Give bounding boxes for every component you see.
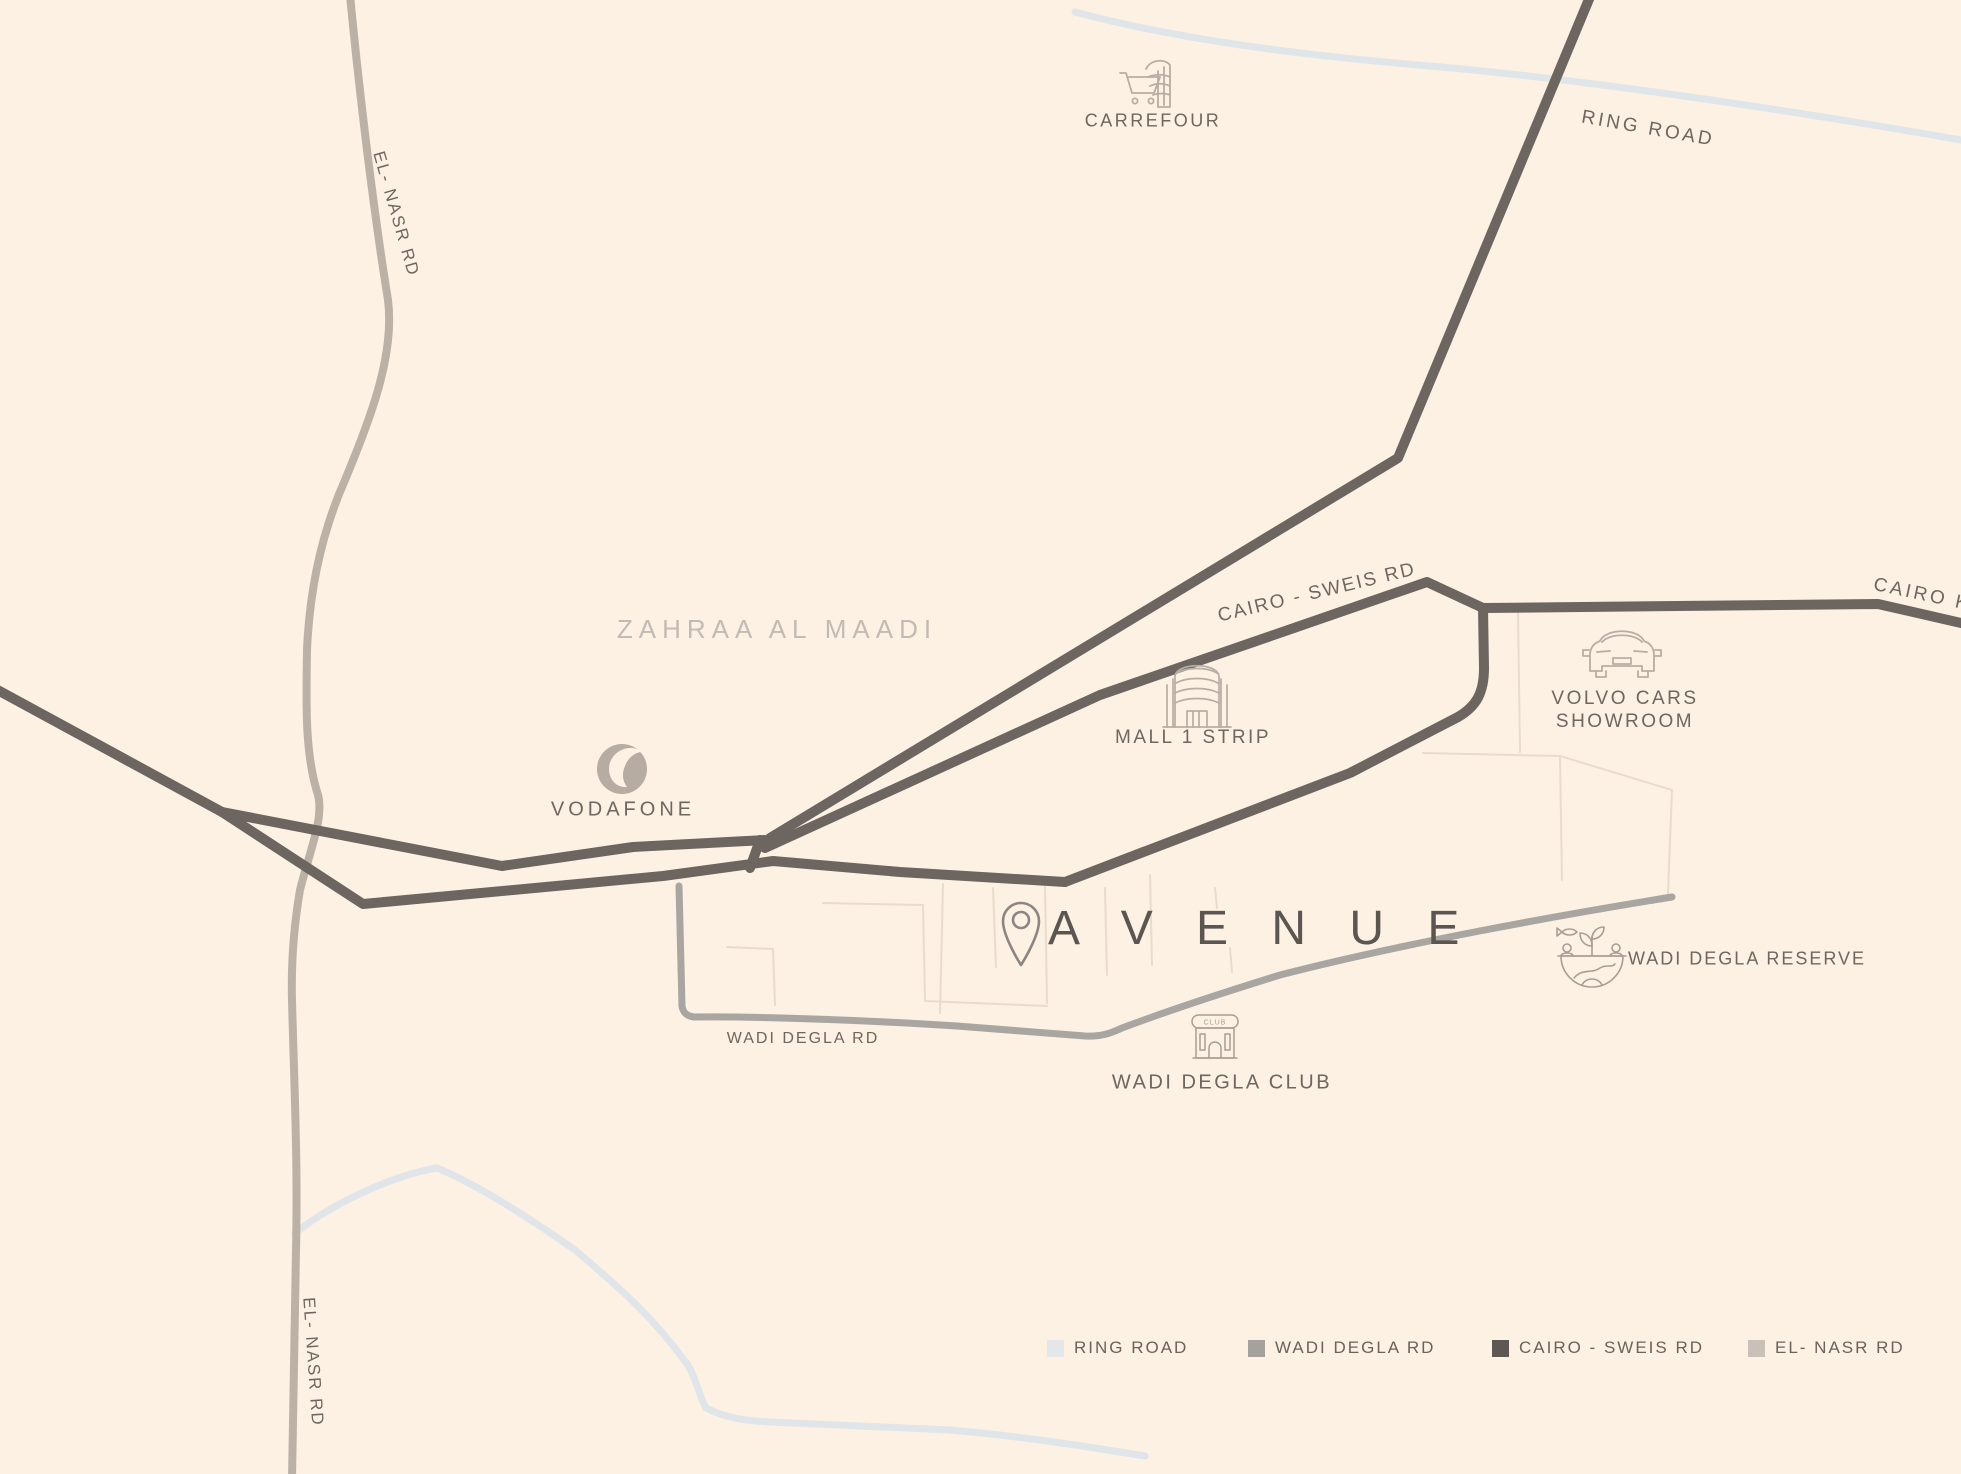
legend-swatch-cairo-sweis-rd [1492,1340,1509,1357]
legend-label-cairo-sweis-rd: CAIRO - SWEIS RD [1519,1338,1704,1358]
legend-item-ring-road: RING ROAD [1047,1338,1188,1358]
nature-reserve-icon [1552,918,1632,996]
location-map: CLUB CARREFOUR RING ROAD EL- NASR RD CAI… [0,0,1961,1474]
legend-item-cairo-sweis-rd: CAIRO - SWEIS RD [1492,1338,1704,1358]
poi-label-volvo-line1: VOLVO CARS [1551,688,1698,710]
legend-label-el-nasr-rd: EL- NASR RD [1775,1338,1905,1358]
road-cairo-sweis-main [765,582,1961,848]
mall-building-icon [1157,657,1237,729]
road-loop-south [222,812,1065,904]
road-network [0,0,1961,1474]
poi-label-wadi-degla-reserve: WADI DEGLA RESERVE [1628,949,1866,970]
location-pin-icon [999,899,1043,969]
poi-label-wadi-degla-club: WADI DEGLA CLUB [1112,1072,1332,1095]
road-label-wadi-degla-rd: WADI DEGLA RD [727,1030,880,1048]
road-west-stub [0,688,222,812]
legend-label-wadi-degla-rd: WADI DEGLA RD [1275,1338,1435,1358]
project-name-avenue: A V E N U E [1048,905,1474,953]
legend-swatch-ring-road [1047,1340,1064,1357]
legend-swatch-el-nasr-rd [1748,1340,1765,1357]
poi-label-volvo-line2: SHOWROOM [1556,711,1694,733]
legend-item-wadi-degla-rd: WADI DEGLA RD [1248,1338,1435,1358]
road-el-nasr [292,0,389,1474]
legend-swatch-wadi-degla-rd [1248,1340,1265,1357]
shopping-cart-icon [1112,57,1182,117]
poi-label-vodafone: VODAFONE [551,799,695,822]
car-icon [1578,619,1666,683]
poi-label-carrefour: CARREFOUR [1085,111,1222,132]
legend-label-ring-road: RING ROAD [1074,1338,1188,1358]
road-ring-south [295,1168,1145,1456]
club-icon-text: CLUB [1204,1020,1227,1027]
poi-label-mall-1-strip: MALL 1 STRIP [1115,727,1271,749]
legend-item-el-nasr-rd: EL- NASR RD [1748,1338,1905,1358]
clubhouse-icon: CLUB [1185,1010,1245,1064]
vodafone-logo-icon [596,743,648,795]
district-label-zahraa-al-maadi: ZAHRAA AL MAADI [617,615,937,645]
